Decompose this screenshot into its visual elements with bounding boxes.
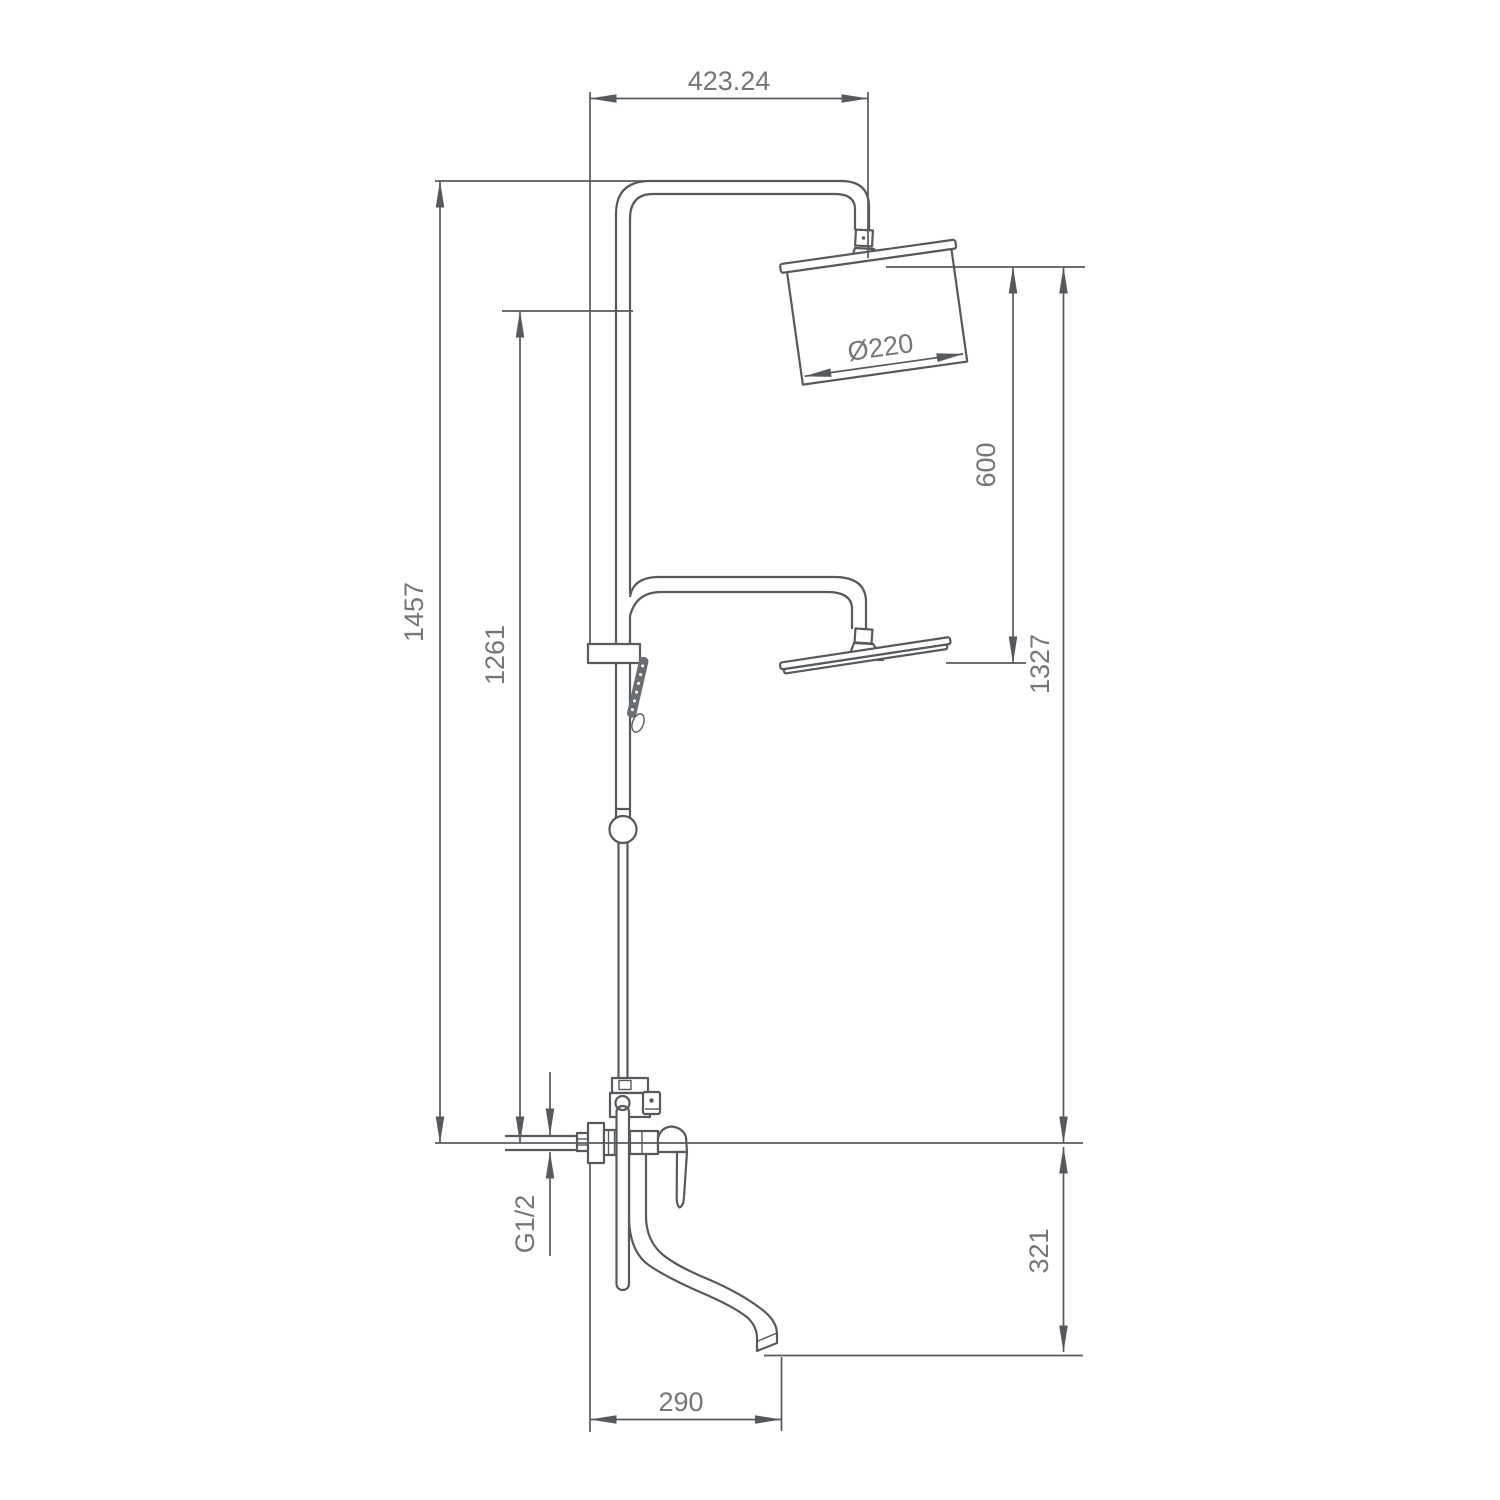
dim-head-spacing-label: 600: [971, 442, 1001, 487]
upper-head-body: [787, 249, 967, 384]
dim-inlet-thread: G1/2: [510, 1072, 550, 1256]
dim-head-height-label: 1327: [1025, 634, 1055, 694]
dim-total-height-label: 1457: [399, 582, 429, 642]
dimensions: 423.24 1457 1261 600 1327 321: [399, 66, 1085, 1432]
hose-drop: [617, 1106, 630, 1290]
dim-head-height: 1327: [1025, 267, 1064, 1143]
dim-riser-height-label: 1261: [480, 625, 510, 685]
tub-spout: [629, 1153, 777, 1351]
diverter-knob: [643, 1092, 660, 1114]
shower-system-drawing: 423.24 1457 1261 600 1327 321: [0, 0, 1500, 1500]
shower-hose: [616, 1096, 630, 1290]
slider-ball: [610, 816, 637, 843]
dim-riser-height: 1261: [480, 311, 520, 1143]
dim-spout-reach-label: 290: [658, 1387, 703, 1417]
inlet-thread-nipple: [577, 1133, 588, 1151]
riser-and-top-arm-outer: [616, 181, 869, 645]
riser-and-top-arm-inner: [630, 194, 855, 594]
dim-inlet-thread-label: G1/2: [510, 1195, 540, 1254]
lower-head-swivel: [855, 628, 873, 643]
dim-spout-drop-label: 321: [1024, 1228, 1054, 1273]
lower-arm-inner: [630, 592, 852, 629]
slider-bracket: [588, 644, 640, 663]
lever-handle-grip: [677, 1152, 687, 1208]
dim-total-height: 1457: [399, 181, 440, 1143]
technical-drawing-page: 423.24 1457 1261 600 1327 321: [0, 0, 1500, 1500]
lower-arm-outer: [630, 577, 866, 629]
dim-spout-drop: 321: [1024, 1147, 1064, 1352]
lower-shower-head: [780, 628, 952, 674]
dim-top-width: 423.24: [590, 66, 868, 99]
dim-top-width-label: 423.24: [688, 66, 771, 96]
dim-spout-reach: 290: [590, 1387, 782, 1420]
dim-head-spacing: 600: [971, 267, 1013, 663]
lever-handle-head: [658, 1127, 687, 1153]
